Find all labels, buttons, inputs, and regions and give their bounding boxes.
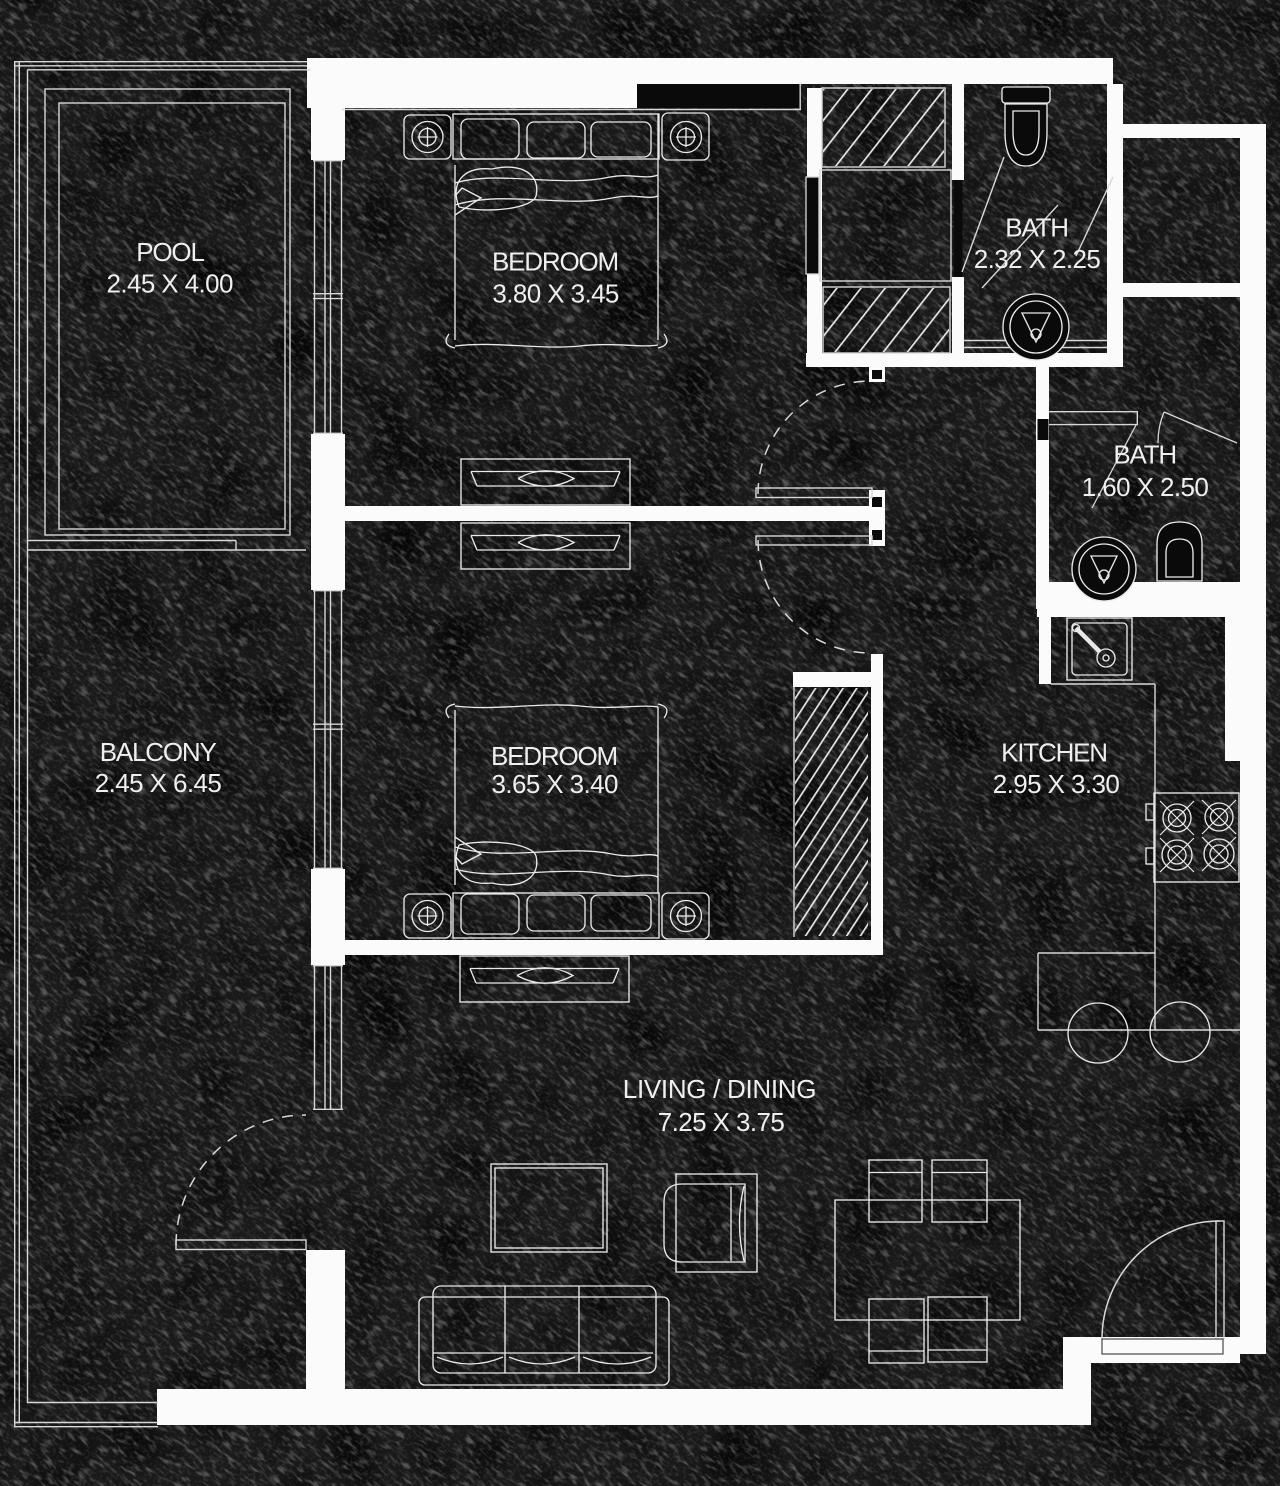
- svg-text:2.45 X 4.00: 2.45 X 4.00: [106, 269, 233, 299]
- svg-text:BATH: BATH: [1113, 440, 1176, 470]
- svg-text:3.80 X 3.45: 3.80 X 3.45: [492, 279, 619, 309]
- svg-text:2.32 X 2.25: 2.32 X 2.25: [974, 244, 1101, 274]
- svg-text:BEDROOM: BEDROOM: [492, 247, 618, 277]
- svg-text:BATH: BATH: [1005, 213, 1068, 243]
- svg-text:2.45 X 6.45: 2.45 X 6.45: [95, 768, 222, 798]
- svg-text:1.60 X 2.50: 1.60 X 2.50: [1082, 472, 1209, 502]
- svg-text:BALCONY: BALCONY: [100, 737, 217, 767]
- svg-text:BEDROOM: BEDROOM: [491, 741, 617, 771]
- svg-text:KITCHEN: KITCHEN: [1001, 738, 1107, 768]
- svg-text:2.95 X 3.30: 2.95 X 3.30: [993, 769, 1120, 799]
- svg-text:LIVING / DINING: LIVING / DINING: [623, 1074, 816, 1104]
- svg-text:POOL: POOL: [136, 237, 204, 267]
- svg-text:7.25 X 3.75: 7.25 X 3.75: [658, 1107, 785, 1137]
- svg-text:3.65 X 3.40: 3.65 X 3.40: [491, 769, 618, 799]
